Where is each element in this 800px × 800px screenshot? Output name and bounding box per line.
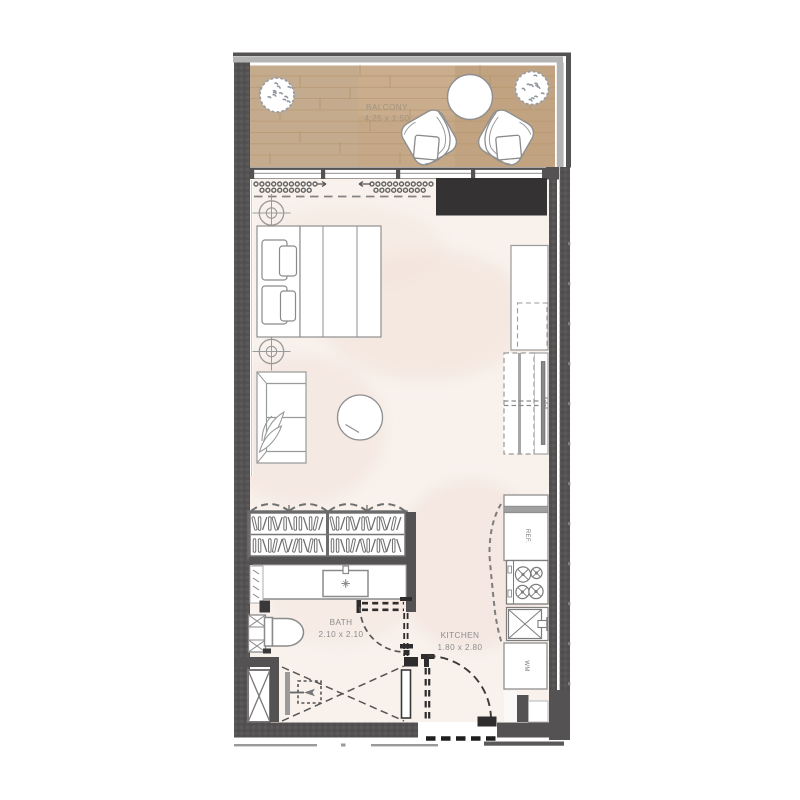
svg-text:2.10 x 2.10: 2.10 x 2.10 bbox=[319, 630, 364, 639]
svg-text:BATH: BATH bbox=[330, 618, 353, 627]
svg-text:4.25 x 1.50: 4.25 x 1.50 bbox=[365, 114, 410, 123]
svg-text:KITCHEN: KITCHEN bbox=[441, 631, 480, 640]
svg-text:WM: WM bbox=[523, 660, 529, 671]
svg-text:1.80 x 2.80: 1.80 x 2.80 bbox=[438, 643, 483, 652]
svg-text:BALCONY: BALCONY bbox=[366, 103, 408, 112]
svg-text:REF.: REF. bbox=[524, 529, 530, 543]
